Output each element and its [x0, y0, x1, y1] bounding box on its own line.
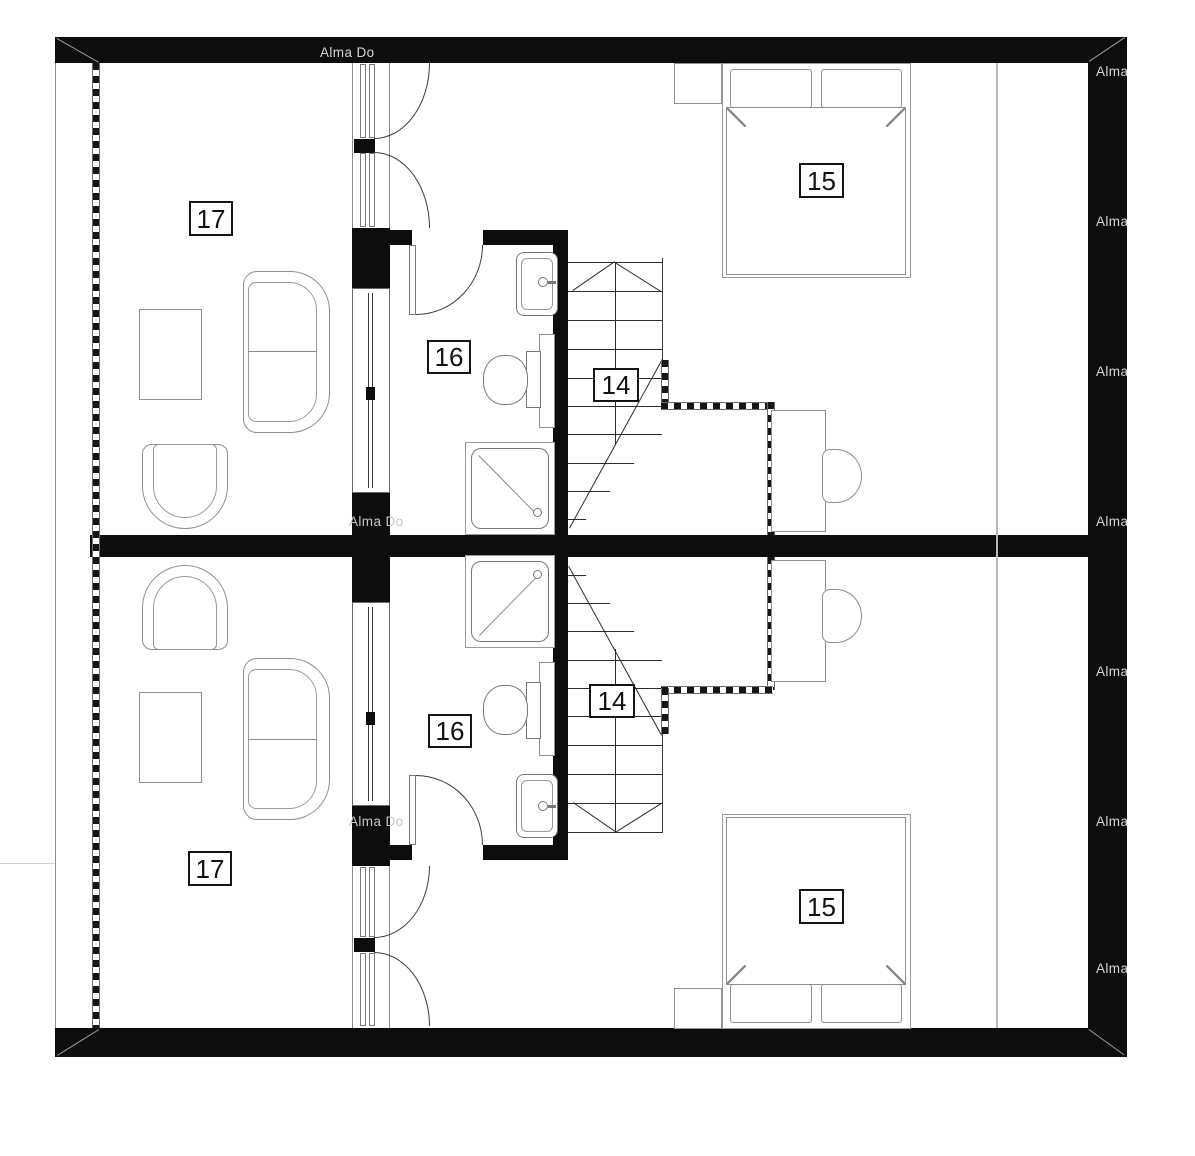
door-swing-arc: [416, 775, 483, 845]
watermark-text: Alma: [1096, 814, 1128, 829]
stair-direction-arrow: [614, 262, 660, 292]
mattress-fold: [886, 108, 905, 127]
bathroom-wall: [390, 230, 412, 245]
stair-railing: [661, 686, 773, 694]
watermark-text: Alma: [1096, 961, 1128, 976]
stair-tread: [568, 575, 586, 576]
watermark-text: Alma Do: [349, 814, 404, 829]
faucet-icon: [538, 277, 548, 287]
coffee-table: [139, 692, 202, 783]
desk: [771, 560, 826, 682]
stair-edge-line: [662, 731, 663, 833]
watermark-text: Alma Do: [349, 514, 404, 529]
watermark-text: Alma: [1096, 664, 1128, 679]
facade-outer-line-left: [55, 63, 56, 1028]
watermark-text: Alma: [1096, 64, 1128, 79]
window-glazing: [368, 607, 373, 801]
pillow: [730, 984, 812, 1023]
stair-direction-arrow: [615, 803, 661, 833]
sofa-seat: [248, 282, 317, 422]
room-label-living-upper: 17: [189, 201, 233, 236]
stair-railing: [661, 402, 773, 410]
door-swing-arc: [374, 63, 430, 139]
bathroom-counter: [539, 662, 555, 756]
roof-overhang-line: [996, 63, 998, 1028]
stair-tread: [568, 463, 634, 464]
room-label-living-lower: 17: [188, 851, 232, 886]
outer-wall-top: [55, 37, 1127, 63]
bathroom-counter: [539, 334, 555, 428]
divider-wall-segment: [352, 228, 390, 288]
toilet-bowl: [483, 685, 528, 735]
divider-wall-segment: [352, 557, 390, 602]
mattress-fold: [886, 965, 905, 984]
window-mullion: [366, 712, 375, 725]
bathroom-wall: [390, 845, 412, 860]
toilet-cistern: [526, 351, 541, 408]
outer-wall-bottom: [55, 1028, 1127, 1057]
door-swing-arc: [374, 152, 430, 228]
faint-reference-line: [0, 863, 55, 864]
watermark-text: Alma: [1096, 364, 1128, 379]
door-leaf: [360, 153, 366, 227]
toilet-cistern: [526, 682, 541, 739]
faucet-stub: [548, 805, 556, 808]
toilet-bowl: [483, 355, 528, 405]
faucet-stub: [548, 281, 556, 284]
armchair-seat: [153, 576, 217, 650]
watermark-text: Alma: [1096, 514, 1128, 529]
shower-drain: [533, 508, 542, 517]
door-post: [354, 139, 375, 153]
pillow: [821, 984, 902, 1023]
stair-railing: [661, 360, 669, 406]
door-swing-arc: [374, 952, 430, 1026]
stair-railing: [661, 688, 669, 734]
stair-center-line: [615, 262, 616, 445]
door-leaf: [360, 953, 366, 1026]
mattress-fold: [727, 965, 746, 984]
stair-direction-arrow: [572, 261, 615, 291]
room-label-bedroom-lower: 15: [799, 889, 844, 924]
window-mullion: [366, 387, 375, 400]
armchair-seat: [153, 444, 217, 518]
sink-basin: [521, 258, 553, 310]
door-leaf: [360, 64, 366, 138]
door-swing-arc: [374, 866, 430, 938]
door-leaf: [409, 245, 416, 315]
stair-center-line: [615, 649, 616, 832]
watermark-text: Alma: [1096, 214, 1128, 229]
door-frame-line: [352, 63, 353, 228]
party-wall-middle: [90, 535, 1127, 557]
desk-chair: [822, 589, 862, 643]
desk: [771, 410, 826, 532]
sofa-seat-divider: [248, 739, 317, 740]
mattress-fold: [727, 108, 746, 127]
door-frame-line: [352, 866, 353, 1028]
nightstand: [674, 988, 722, 1029]
shower-drain: [533, 570, 542, 579]
room-label-bathroom-upper: 16: [427, 340, 471, 374]
stair-direction-arrow: [573, 802, 616, 832]
desk-chair: [822, 449, 862, 503]
door-leaf: [409, 775, 416, 845]
stair-tread: [568, 519, 586, 520]
nightstand: [674, 63, 722, 104]
stair-edge-line: [662, 258, 663, 360]
floor-plan-canvas: 17 16 14 15: [0, 0, 1195, 1156]
room-label-bathroom-lower: 16: [428, 714, 472, 748]
door-swing-arc: [416, 245, 483, 315]
pillow: [821, 69, 902, 108]
room-label-stairs-upper: 14: [593, 368, 639, 402]
insulated-wall-left: [92, 63, 100, 1028]
room-label-bedroom-upper: 15: [799, 163, 844, 198]
watermark-text: Alma Do: [320, 45, 375, 60]
door-leaf: [360, 867, 366, 937]
pillow: [730, 69, 812, 108]
sofa-seat-divider: [248, 351, 317, 352]
coffee-table: [139, 309, 202, 400]
door-post: [354, 938, 375, 952]
faucet-icon: [538, 801, 548, 811]
stair-tread: [568, 631, 634, 632]
room-label-stairs-lower: 14: [589, 684, 635, 718]
